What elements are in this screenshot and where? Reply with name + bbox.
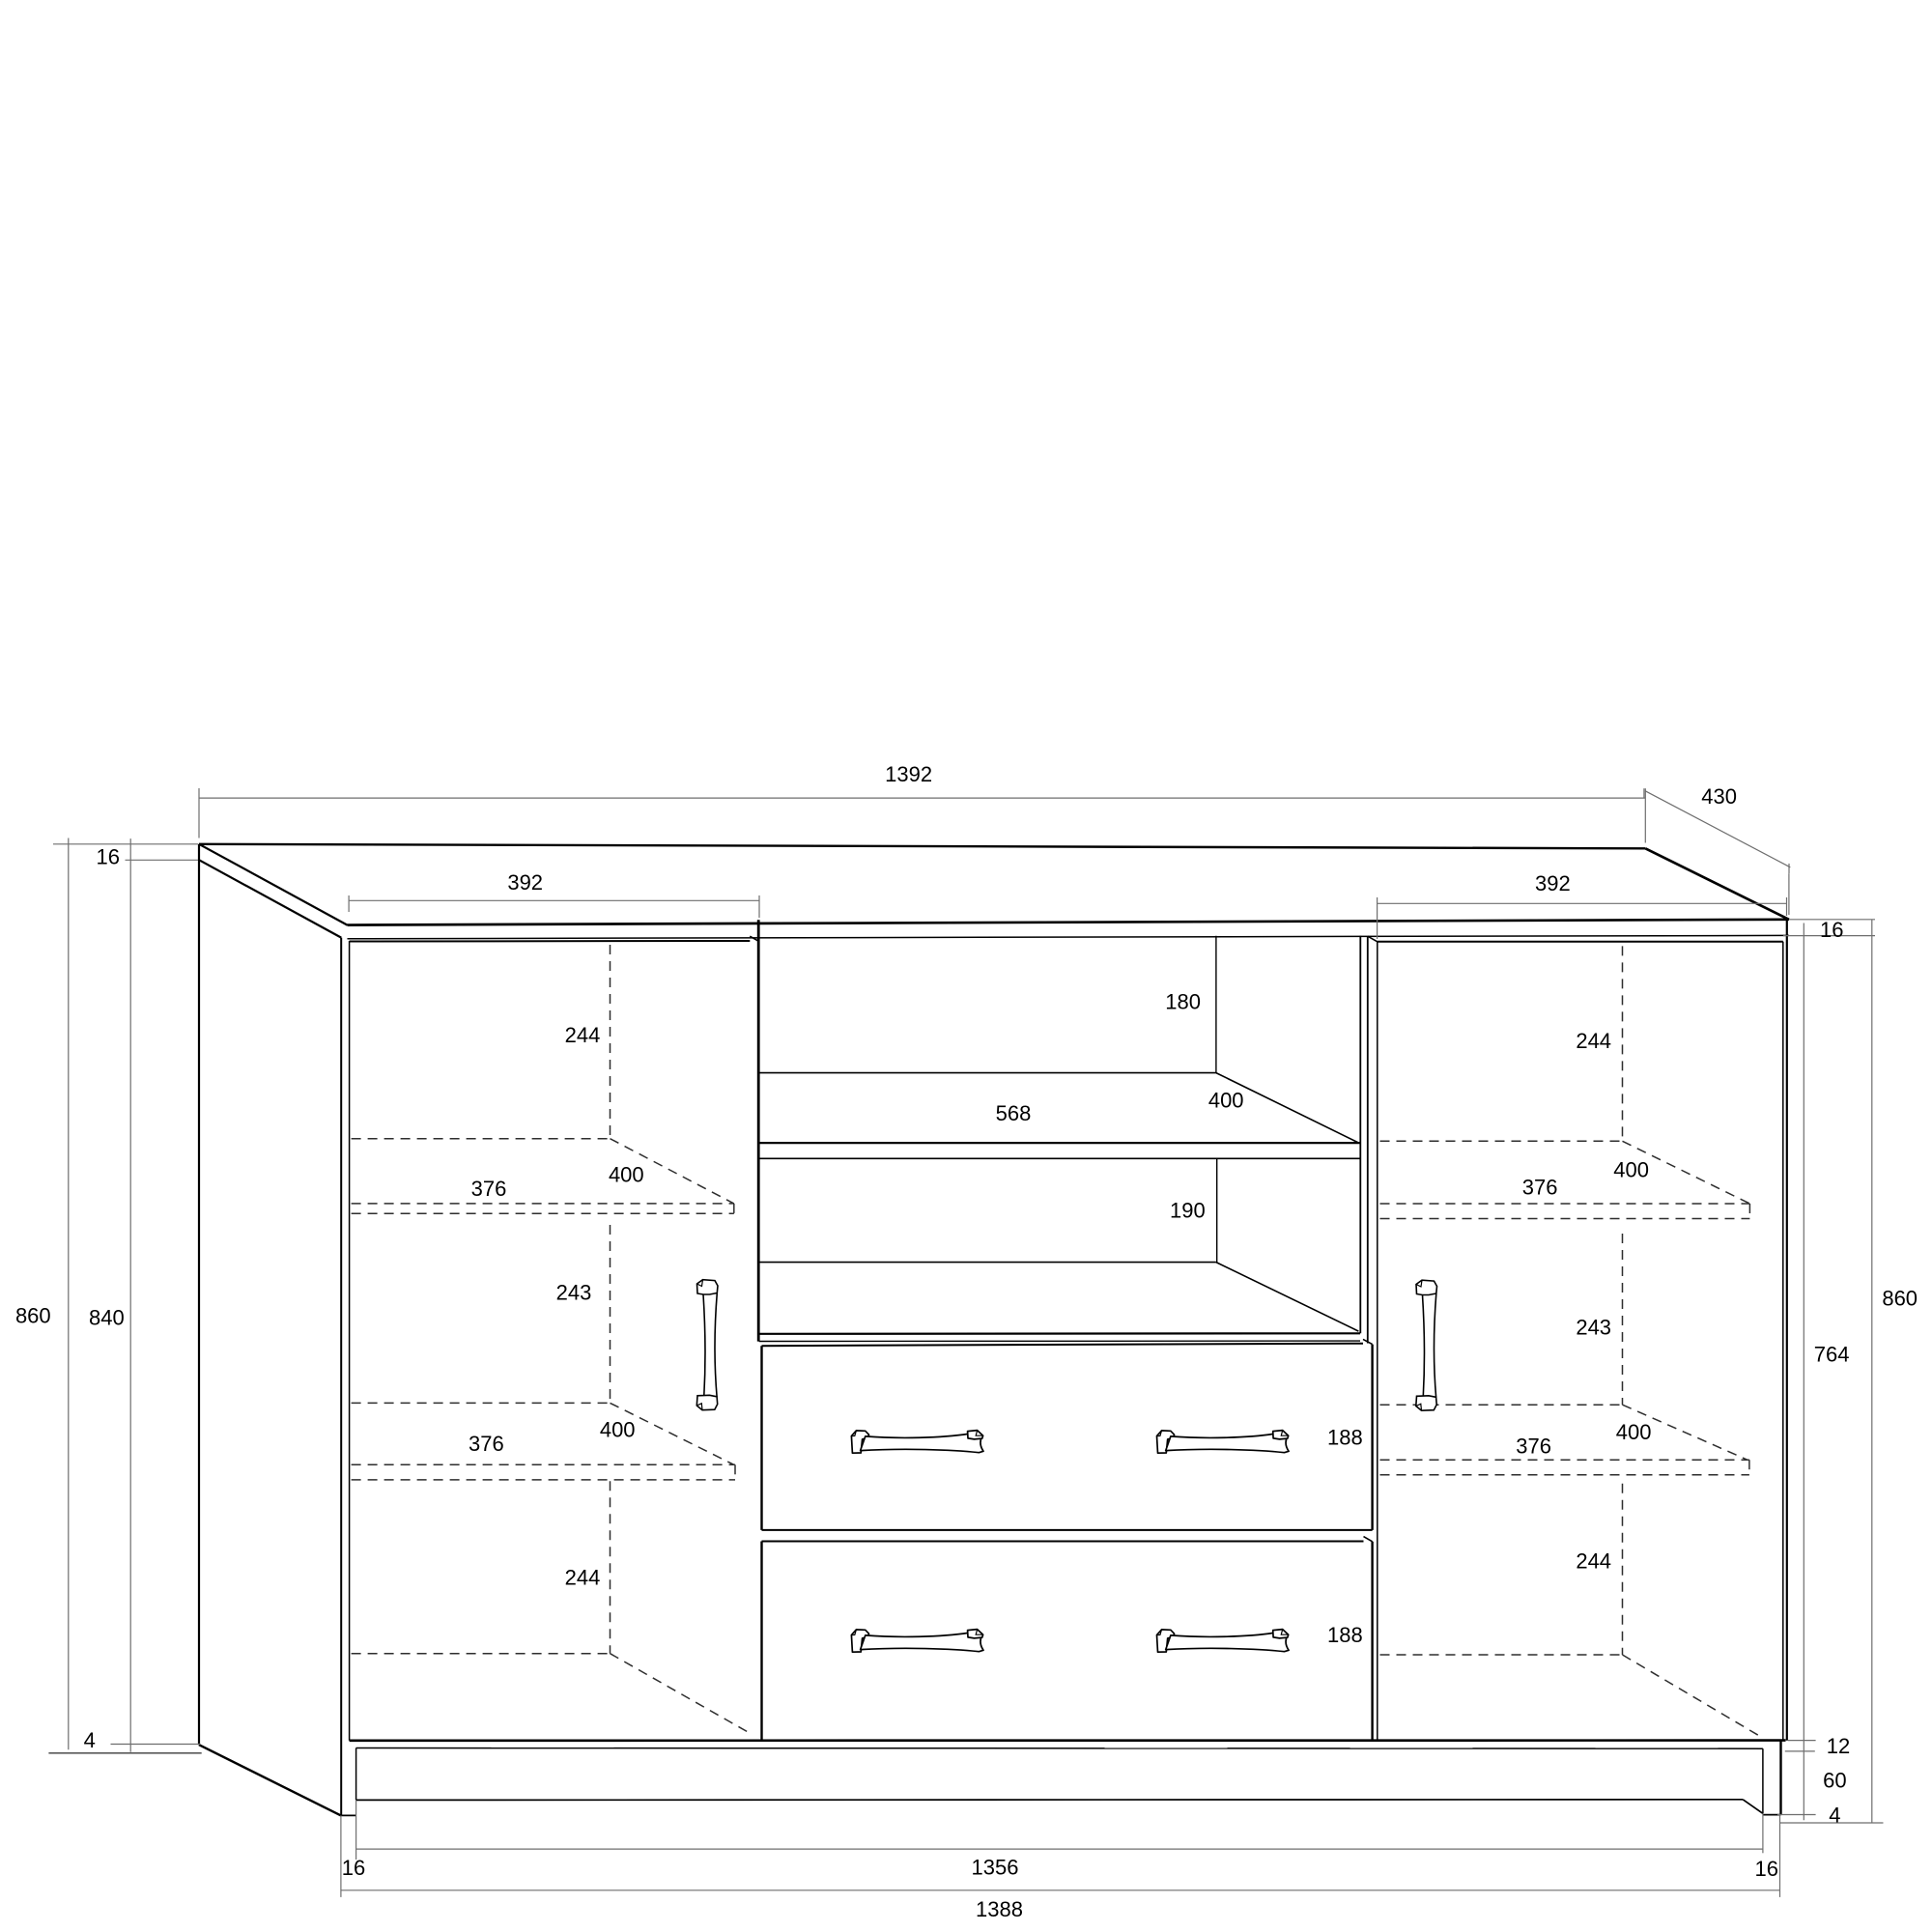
svg-text:400: 400 bbox=[1208, 1089, 1244, 1113]
svg-text:188: 188 bbox=[1327, 1623, 1363, 1647]
svg-text:568: 568 bbox=[996, 1101, 1032, 1125]
svg-text:400: 400 bbox=[1616, 1420, 1652, 1444]
svg-text:1356: 1356 bbox=[972, 1855, 1019, 1879]
svg-text:1388: 1388 bbox=[976, 1897, 1023, 1921]
svg-text:244: 244 bbox=[1576, 1549, 1611, 1574]
svg-text:243: 243 bbox=[1576, 1316, 1611, 1340]
svg-text:4: 4 bbox=[84, 1728, 96, 1752]
svg-text:60: 60 bbox=[1823, 1768, 1846, 1792]
svg-text:376: 376 bbox=[1522, 1176, 1558, 1200]
svg-text:860: 860 bbox=[15, 1303, 51, 1327]
svg-text:243: 243 bbox=[556, 1280, 592, 1304]
svg-text:16: 16 bbox=[1755, 1857, 1778, 1881]
svg-text:180: 180 bbox=[1165, 989, 1201, 1013]
svg-text:400: 400 bbox=[609, 1163, 644, 1187]
svg-text:764: 764 bbox=[1814, 1342, 1850, 1366]
svg-text:244: 244 bbox=[565, 1565, 601, 1589]
svg-text:16: 16 bbox=[97, 844, 120, 868]
svg-text:244: 244 bbox=[565, 1023, 601, 1047]
svg-text:190: 190 bbox=[1170, 1199, 1206, 1223]
svg-text:376: 376 bbox=[471, 1177, 507, 1201]
svg-text:1392: 1392 bbox=[885, 762, 932, 786]
svg-text:376: 376 bbox=[1516, 1434, 1551, 1458]
svg-text:392: 392 bbox=[507, 870, 543, 895]
svg-text:840: 840 bbox=[89, 1305, 125, 1329]
svg-text:188: 188 bbox=[1327, 1426, 1363, 1450]
svg-text:430: 430 bbox=[1701, 784, 1737, 809]
svg-text:376: 376 bbox=[469, 1432, 504, 1456]
svg-text:16: 16 bbox=[342, 1856, 365, 1880]
svg-text:244: 244 bbox=[1576, 1029, 1611, 1053]
svg-text:400: 400 bbox=[600, 1418, 636, 1442]
svg-text:392: 392 bbox=[1535, 871, 1571, 895]
svg-text:16: 16 bbox=[1820, 918, 1843, 942]
svg-text:4: 4 bbox=[1829, 1804, 1840, 1828]
svg-text:860: 860 bbox=[1882, 1286, 1918, 1310]
svg-text:400: 400 bbox=[1613, 1158, 1649, 1182]
svg-text:12: 12 bbox=[1827, 1734, 1850, 1758]
